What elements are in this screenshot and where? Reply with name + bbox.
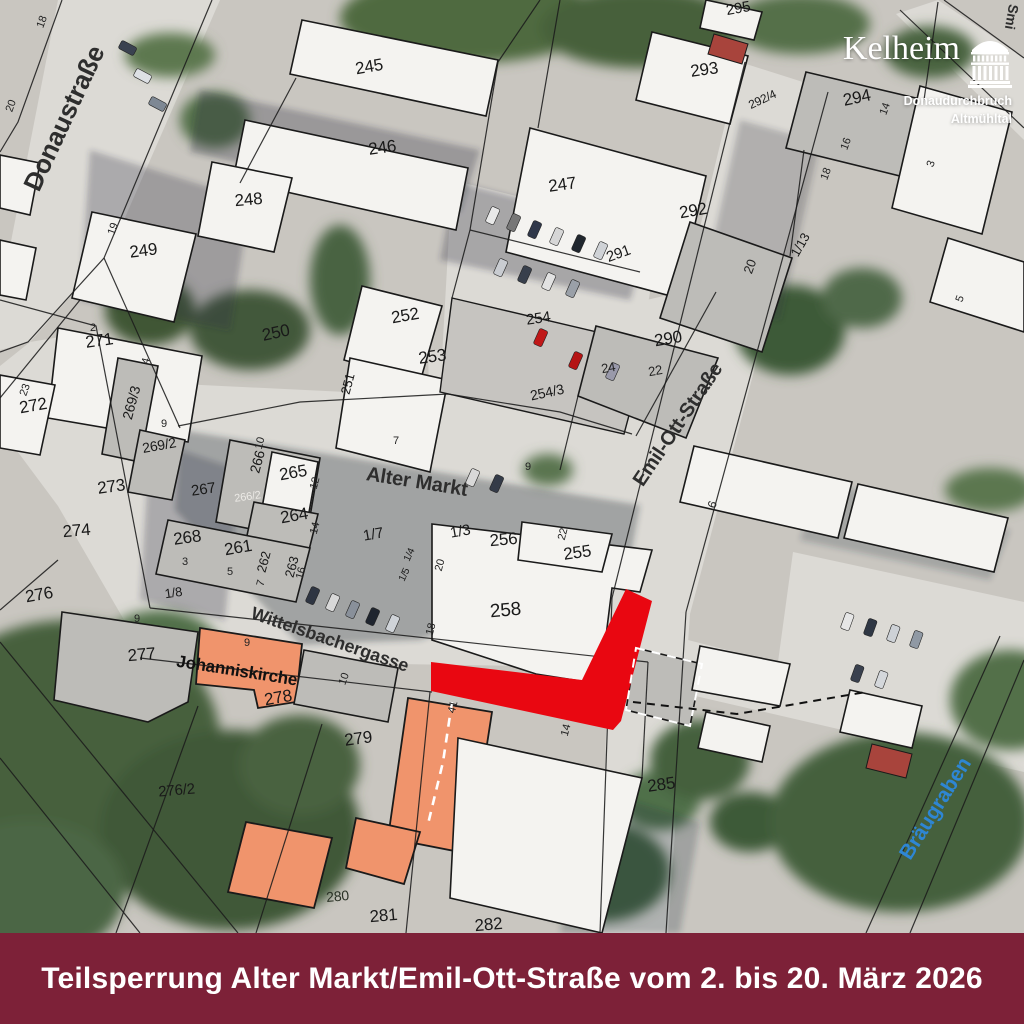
banner-title: Teilsperrung Alter Markt/Emil-Ott-Straße… <box>41 962 983 996</box>
parcel-label: 246 <box>367 136 397 159</box>
parcel-label: 248 <box>234 189 263 210</box>
parcel-label: 274 <box>62 520 91 541</box>
parcel-label: 279 <box>343 727 373 750</box>
house-number: 3 <box>182 556 188 568</box>
parcel-label: 247 <box>547 173 577 196</box>
parcel-label: 281 <box>369 905 398 926</box>
kelheim-logo: Kelheim <box>843 34 1012 127</box>
house-number: 9 <box>134 613 140 625</box>
parcel-label: 277 <box>127 644 156 665</box>
logo-subtitle-1: Donaudurchbruch <box>843 94 1012 110</box>
parcel-label: 271 <box>84 329 114 352</box>
house-number: 9 <box>525 461 531 473</box>
house-number: 5 <box>227 566 233 578</box>
logo-subtitle-2: Altmühltal <box>843 112 1012 128</box>
parcel-label: 282 <box>474 914 503 933</box>
parcel-label: 268 <box>172 526 202 549</box>
parcel-label: 273 <box>96 475 126 498</box>
parcel-label: 256 <box>489 529 518 550</box>
parcel-label: 280 <box>326 887 350 905</box>
parcel-label: 1/7 <box>362 524 385 544</box>
parcel-label: 1/3 <box>449 521 472 541</box>
logo-title: Kelheim <box>843 34 960 65</box>
house-number: 24 <box>600 359 616 376</box>
parcel-label: 254 <box>525 308 552 328</box>
house-number: 9 <box>161 418 167 430</box>
flyer-root: DonaustraßeAlter MarktEmil-Ott-StraßeWit… <box>0 0 1024 1024</box>
parcel-label: 249 <box>128 239 158 261</box>
parcel-label: 293 <box>689 58 719 81</box>
parcel-label: 253 <box>417 345 447 368</box>
befreiungshalle-monument-icon <box>968 34 1012 92</box>
house-number: 22 <box>647 362 663 379</box>
house-number: 7 <box>393 435 399 447</box>
parcel-label: 276/2 <box>158 780 196 800</box>
banner: Teilsperrung Alter Markt/Emil-Ott-Straße… <box>0 933 1024 1024</box>
parcel-label: 1/8 <box>164 584 183 601</box>
parcel-label: 255 <box>562 541 592 564</box>
parcel-label: 258 <box>489 599 522 623</box>
parcel-label: 267 <box>190 479 217 499</box>
aerial-map: DonaustraßeAlter MarktEmil-Ott-StraßeWit… <box>0 0 1024 933</box>
house-number: 9 <box>244 637 250 649</box>
house-number: 2 <box>90 322 96 334</box>
parcel-label: 285 <box>646 773 676 796</box>
